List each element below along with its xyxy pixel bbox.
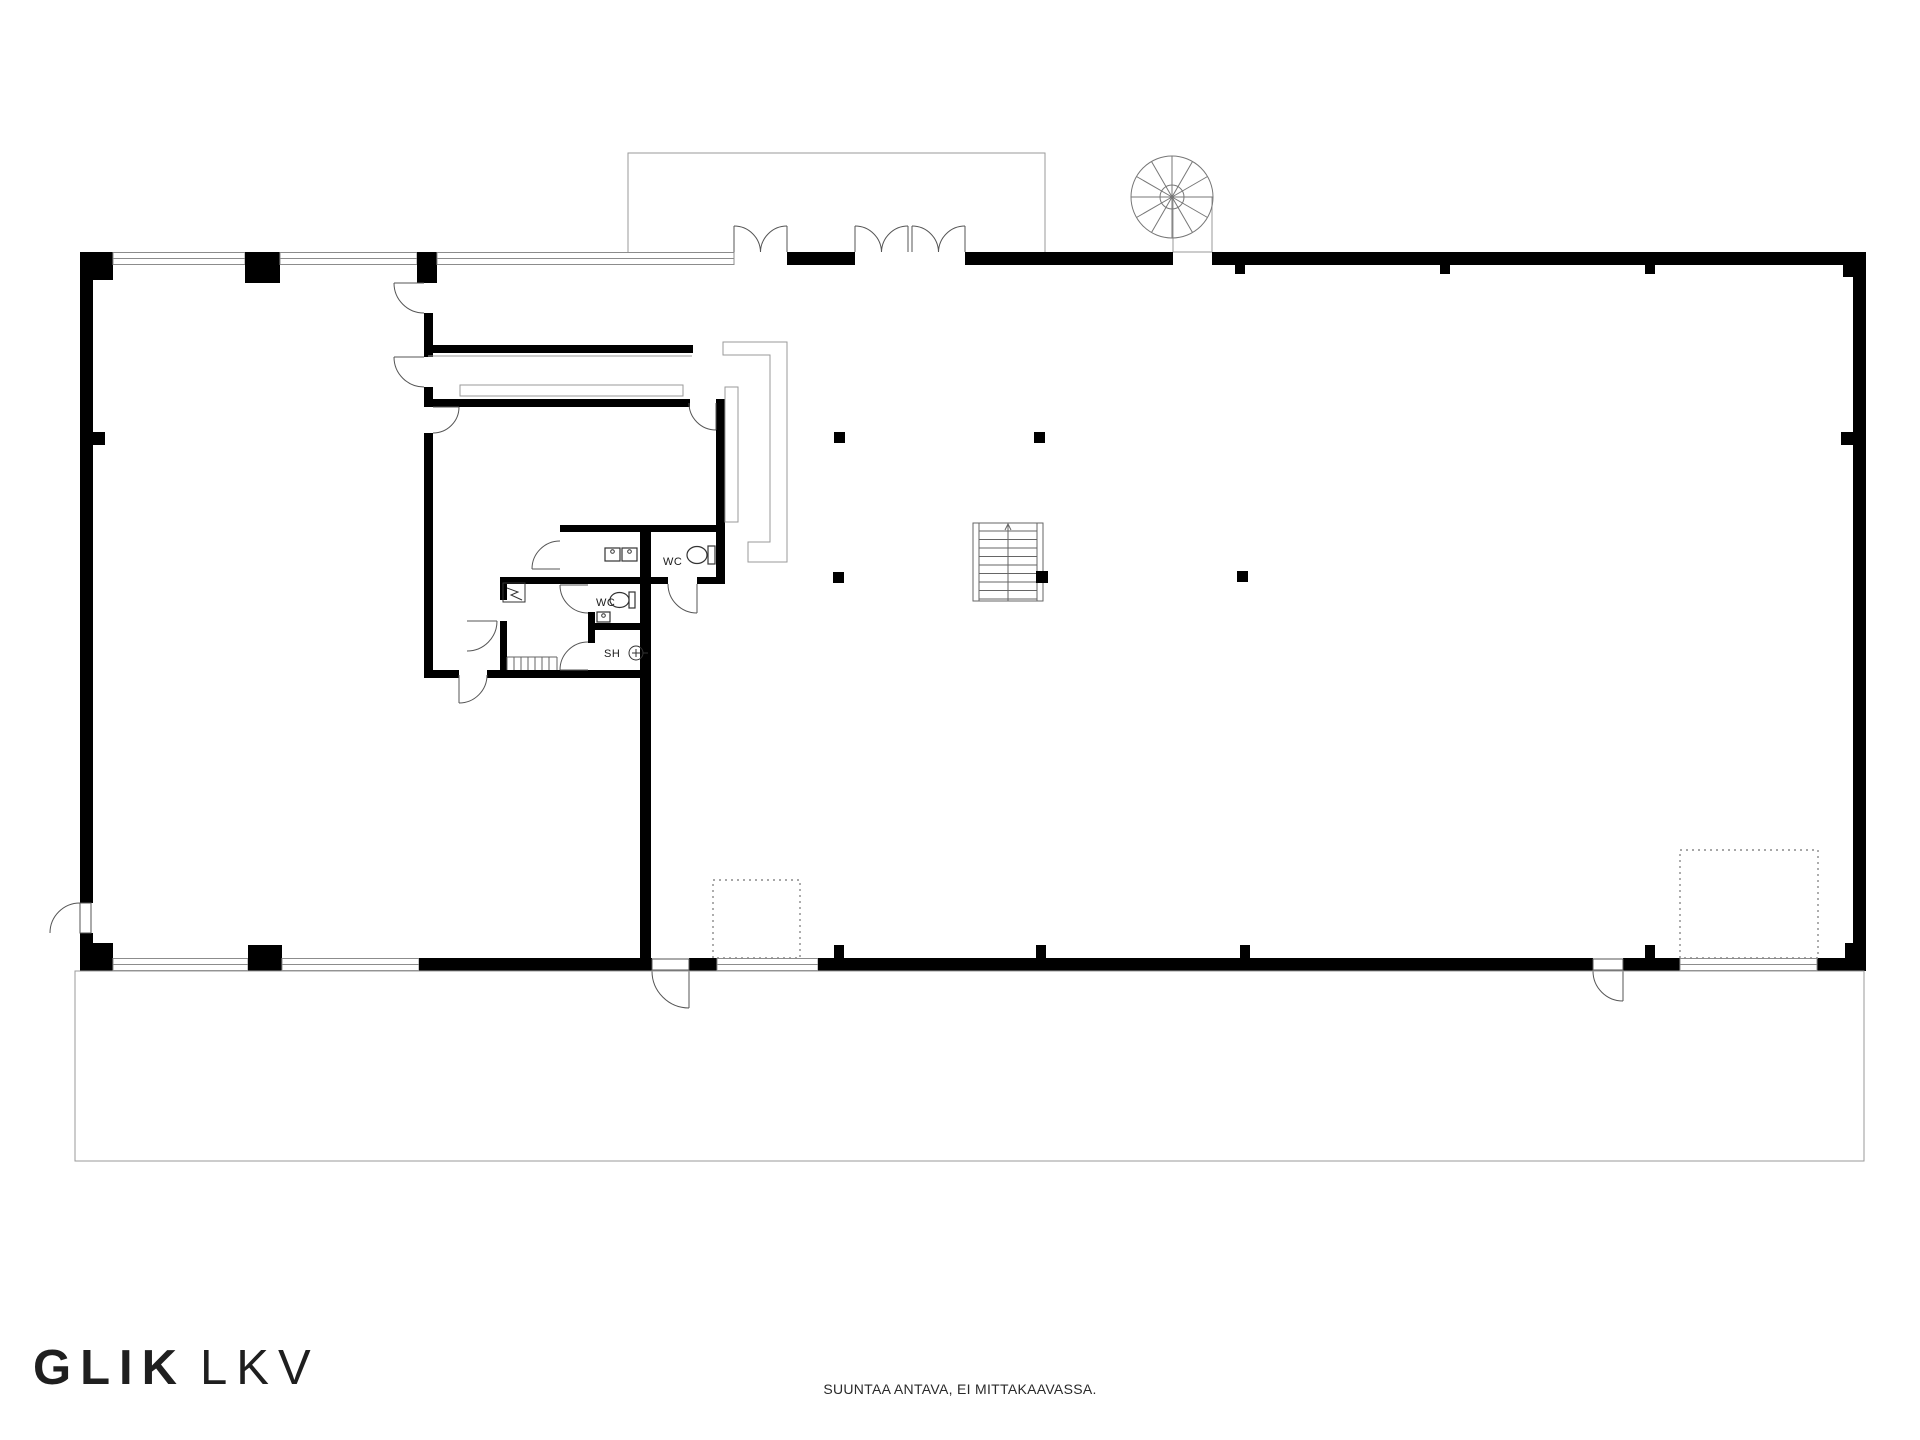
bottom-exit-door-east	[1593, 959, 1623, 1001]
dotted-storage-area-right	[1680, 850, 1818, 958]
right-wall	[1841, 252, 1866, 971]
terrace-outline	[75, 971, 1864, 1161]
floor-plan-page: WC WC SH GLIKLKV SUUNTAA ANTAVA, EI MITT…	[0, 0, 1920, 1440]
canopy-outline	[628, 153, 1045, 252]
top-wall	[80, 252, 1866, 283]
scale-disclaimer: SUUNTAA ANTAVA, EI MITTAKAAVASSA.	[0, 1381, 1920, 1397]
double-sink-icon	[605, 548, 637, 561]
spiral-staircase	[1131, 156, 1213, 252]
dotted-storage-area-left	[713, 880, 800, 958]
entrance-double-door-west	[734, 226, 787, 252]
room-label-wc-1: WC	[663, 556, 682, 568]
entrance-double-door-east	[855, 226, 965, 252]
toilet-icon-wc1	[687, 546, 715, 564]
bottom-exit-door-centre	[652, 959, 689, 1008]
structural-columns	[833, 432, 1248, 583]
interior-walls	[424, 265, 725, 958]
left-wall	[80, 252, 105, 971]
left-exit-door	[50, 903, 91, 933]
floor-plan-drawing: WC WC SH	[0, 0, 1920, 1440]
sink-icon-wc2	[597, 612, 610, 622]
room-label-shower: SH	[604, 648, 620, 660]
room-label-wc-2: WC	[596, 597, 615, 609]
service-stairs	[507, 657, 557, 670]
central-staircase	[973, 523, 1043, 601]
